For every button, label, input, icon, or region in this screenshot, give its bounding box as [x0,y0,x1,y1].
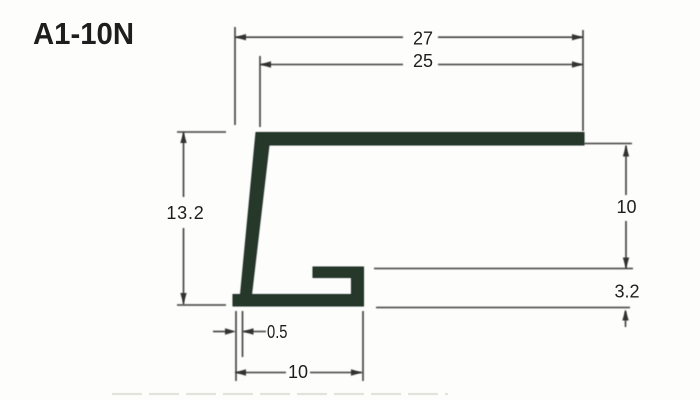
svg-text:A1-10N: A1-10N [33,16,134,51]
svg-text:10: 10 [616,197,636,217]
svg-text:3.2: 3.2 [614,282,639,302]
svg-text:0.5: 0.5 [267,322,288,342]
svg-text:10: 10 [288,362,308,382]
svg-text:25: 25 [413,51,433,71]
svg-text:13.2: 13.2 [166,203,204,223]
svg-text:27: 27 [413,29,433,49]
